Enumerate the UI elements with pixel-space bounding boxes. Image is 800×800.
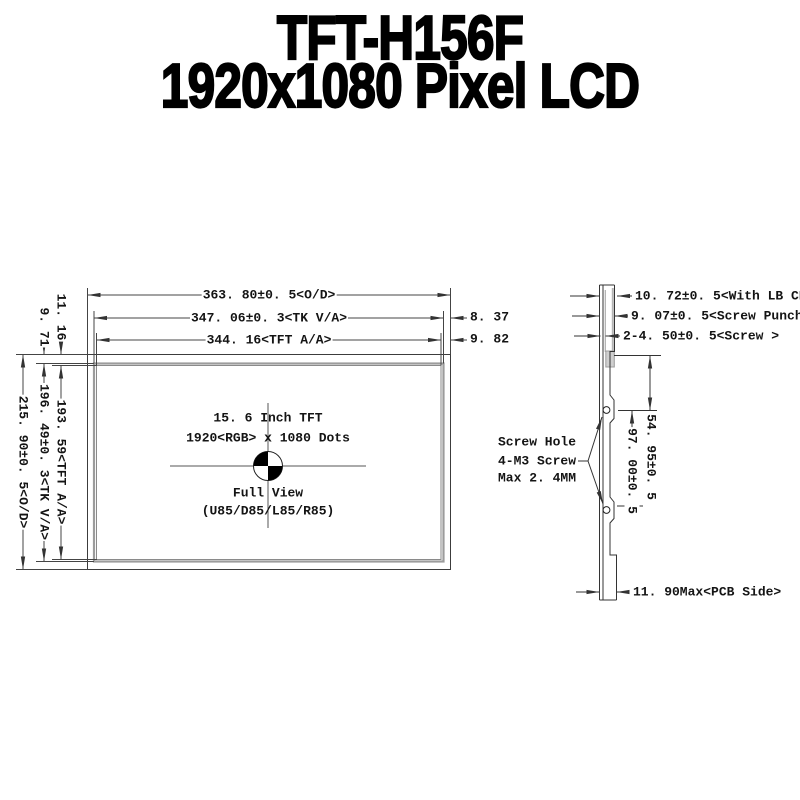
dim-screw-pitch: 97. 00±0. 5 — [625, 427, 640, 515]
dim-pcb-side: 11. 90Max<PCB Side> — [632, 585, 782, 600]
dim-thickness-with-lb-cn: 10. 72±0. 5<With LB CN> — [634, 289, 800, 304]
screw-note-line1: Screw Hole — [497, 435, 577, 450]
dim-aa-height: 193. 59<TFT A/A> — [54, 399, 69, 526]
dim-thickness-screw-punch: 9. 07±0. 5<Screw Punch> — [630, 309, 800, 324]
dim-top-screw-offset: 54. 95±0. 5 — [644, 413, 659, 501]
panel-spec-size: 15. 6 Inch TFT — [212, 411, 323, 426]
screw-note-line2: 4-M3 Screw — [497, 454, 577, 469]
panel-spec-view-angles: (U85/D85/L85/R85) — [201, 504, 336, 519]
center-mark-icon — [254, 452, 283, 481]
drawing-sheet: TFT-H156F 1920x1080 Pixel LCD — [0, 0, 800, 800]
dim-tk-width: 347. 06±0. 3<TK V/A> — [190, 311, 348, 326]
dim-tk-top-gap: 9. 71 — [37, 306, 52, 347]
screw-note-line3: Max 2. 4MM — [497, 471, 577, 486]
screw-hole-bottom — [603, 507, 610, 514]
front-view — [16, 288, 467, 570]
dim-od-width: 363. 80±0. 5<O/D> — [202, 288, 337, 303]
panel-spec-resolution: 1920<RGB> x 1080 Dots — [185, 431, 351, 446]
dim-od-height: 215. 90±0. 5<O/D> — [16, 395, 31, 530]
screw-hole-top — [603, 407, 610, 414]
dim-aa-top-gap: 11. 16 — [54, 293, 69, 342]
dim-aa-width: 344. 16<TFT A/A> — [206, 333, 333, 348]
dim-tk-right-gap: 8. 37 — [469, 310, 510, 325]
panel-spec-view: Full View — [232, 486, 304, 501]
technical-drawing-linework — [0, 0, 800, 800]
dim-screw-diameter: 2-4. 50±0. 5<Screw > — [622, 329, 780, 344]
dim-tk-height: 196. 49±0. 3<TK V/A> — [37, 383, 52, 541]
dim-aa-right-gap: 9. 82 — [469, 332, 510, 347]
